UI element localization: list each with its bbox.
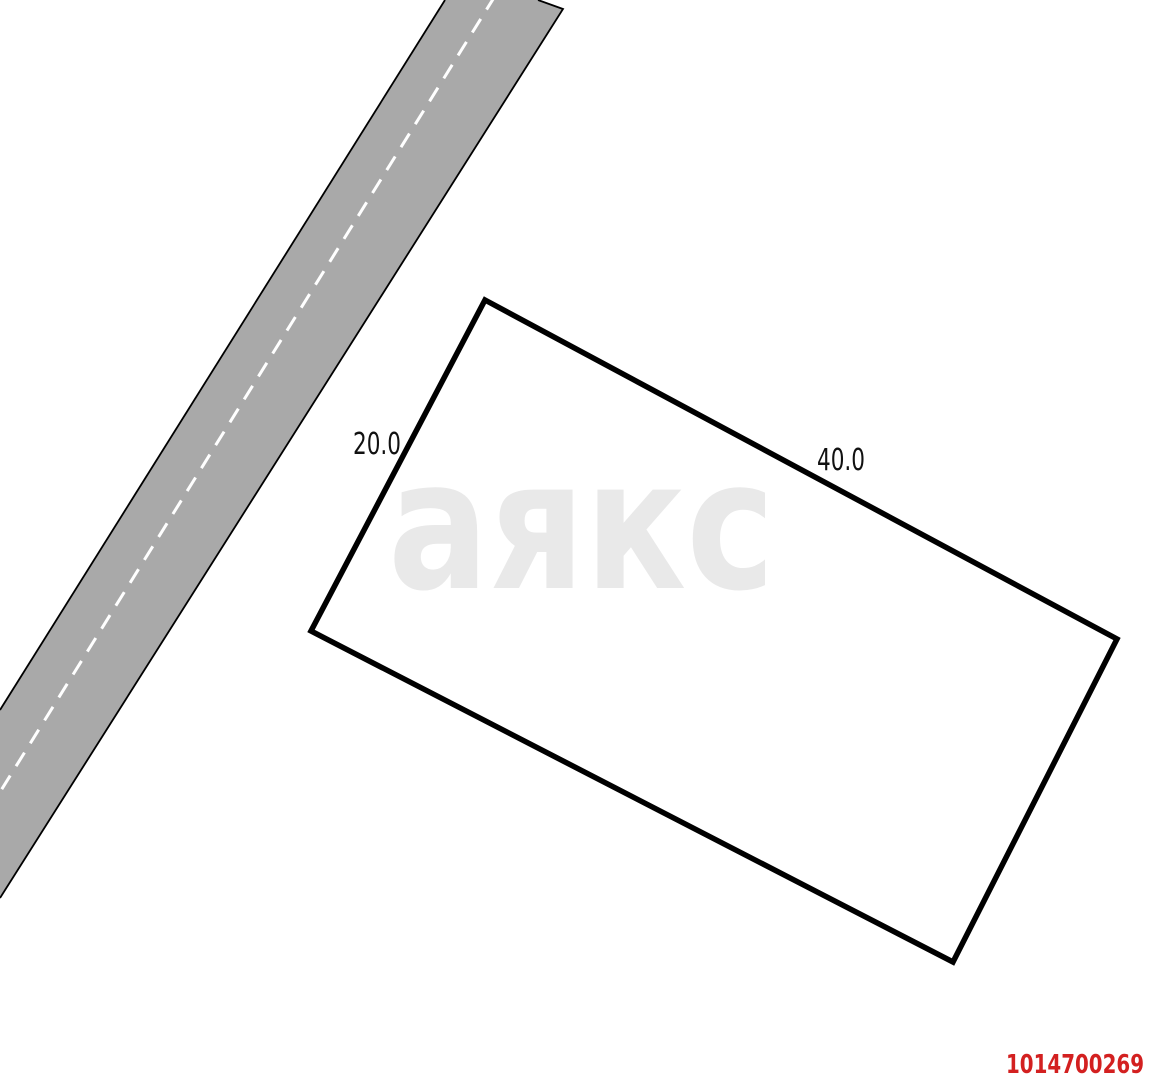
listing-id: 1014700269 [1006, 1050, 1144, 1080]
dimension-label-long-side: 40.0 [817, 443, 865, 478]
dimension-label-short-side: 20.0 [353, 427, 401, 462]
site-plan-drawing: аякс 20.0 40.0 1014700269 [0, 0, 1165, 1083]
site-plan-canvas: аякс 20.0 40.0 1014700269 [0, 0, 1165, 1083]
land-plot [311, 300, 1117, 962]
watermark-logo: аякс [388, 422, 775, 631]
